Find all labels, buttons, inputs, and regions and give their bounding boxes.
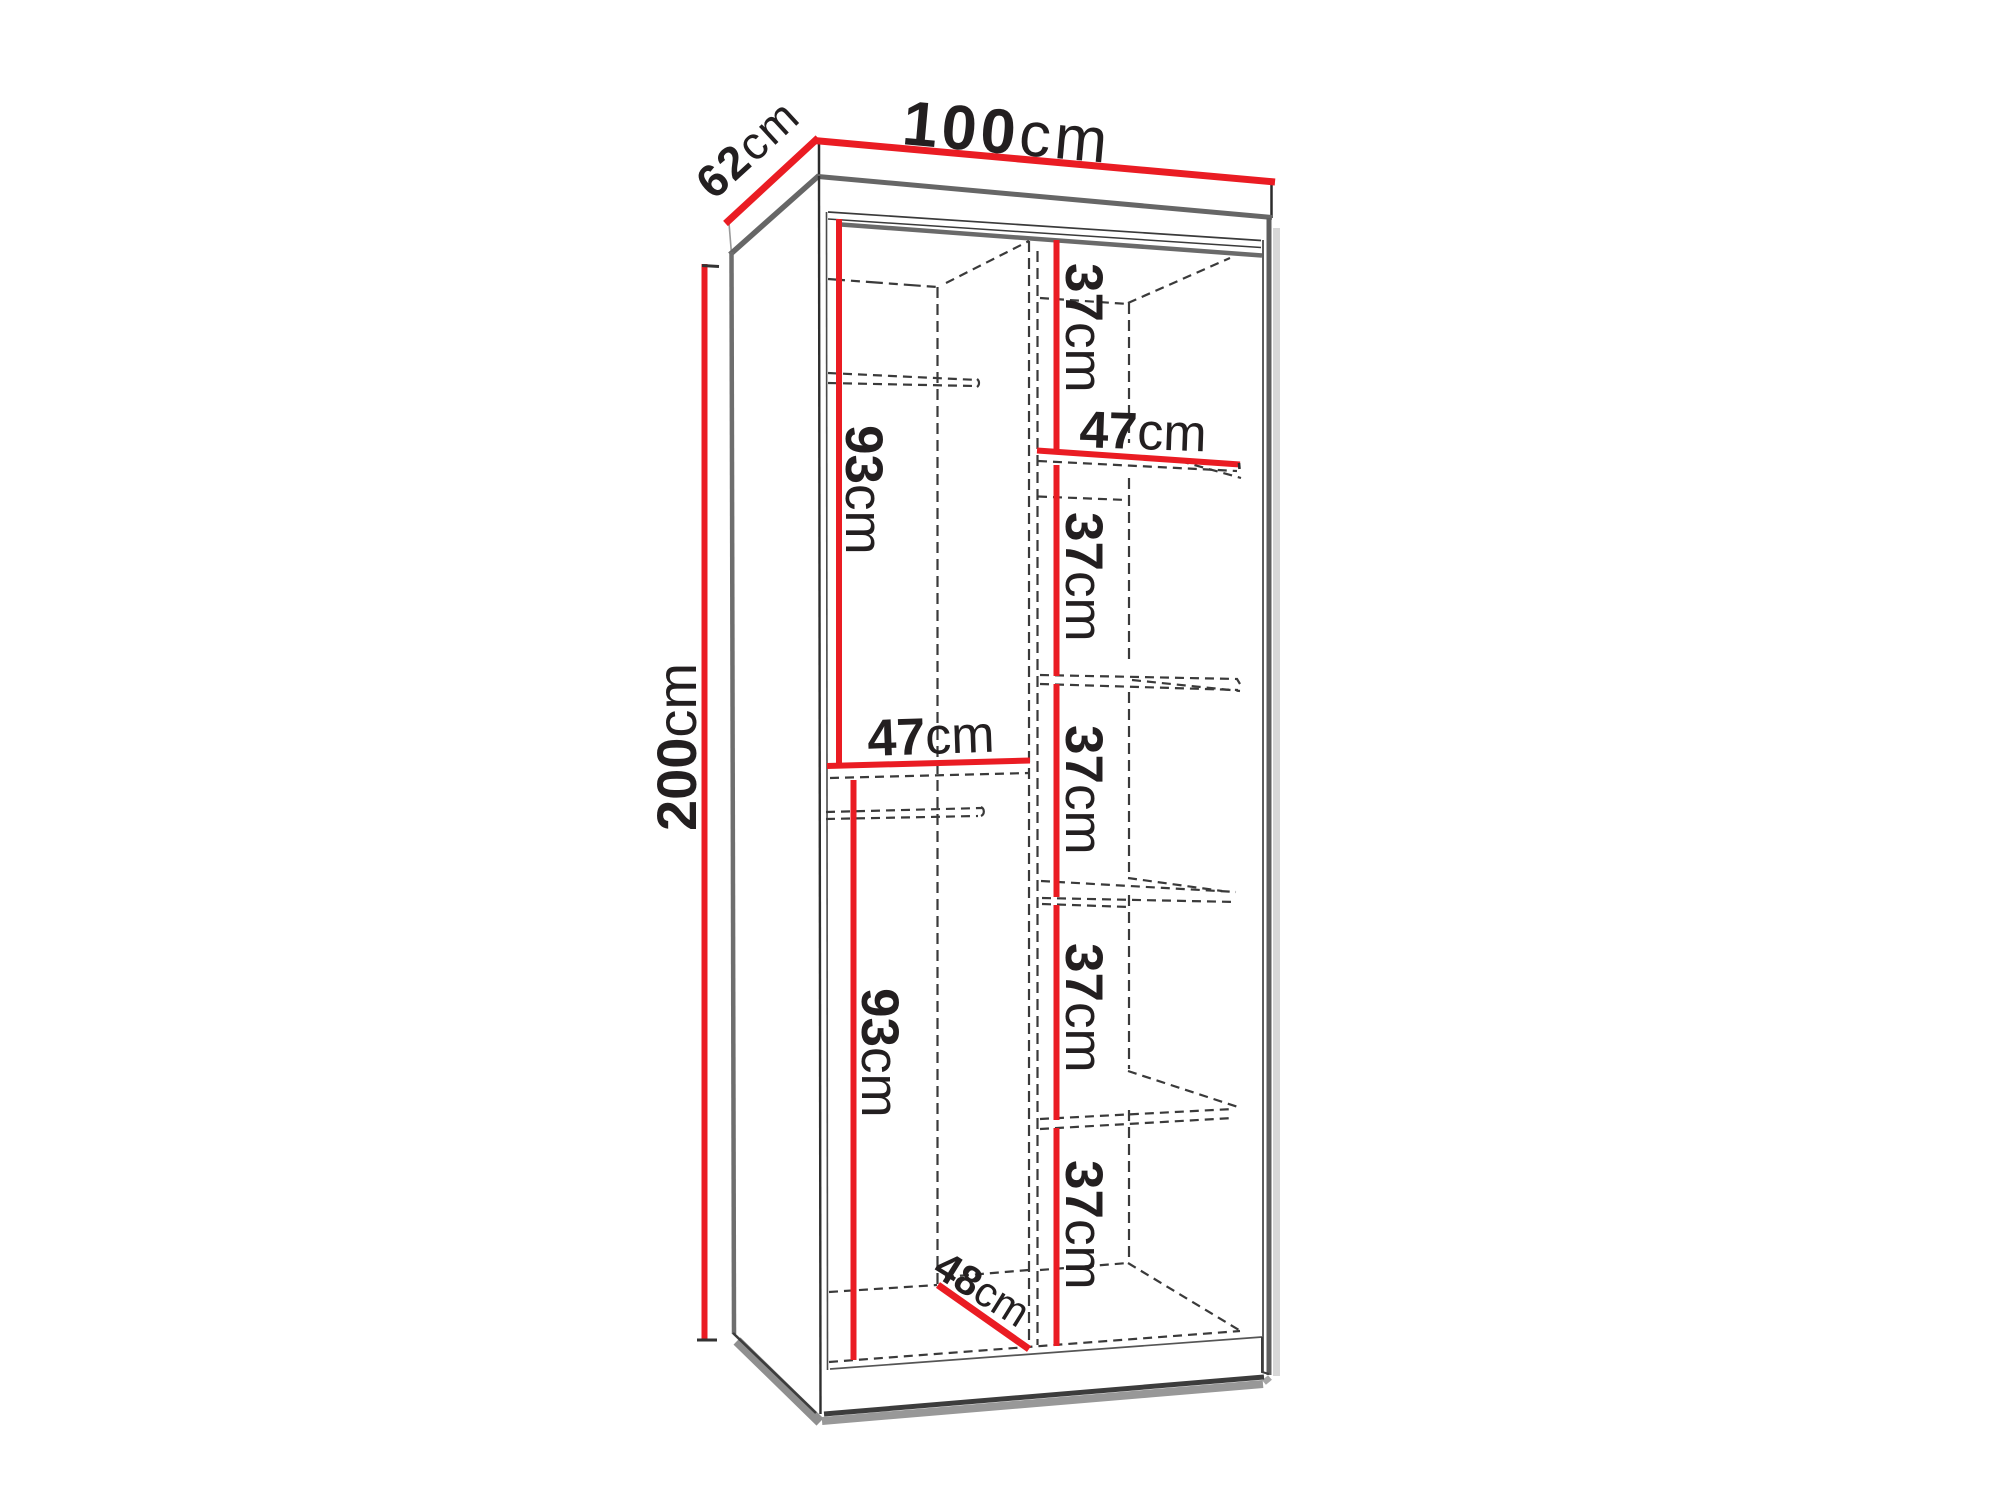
- svg-text:37cm: 37cm: [1054, 512, 1113, 642]
- svg-text:47cm: 47cm: [1079, 401, 1208, 463]
- svg-text:37cm: 37cm: [1054, 263, 1113, 393]
- svg-text:37cm: 37cm: [1054, 725, 1113, 855]
- svg-text:93cm: 93cm: [834, 425, 893, 555]
- svg-text:37cm: 37cm: [1054, 943, 1113, 1073]
- svg-text:37cm: 37cm: [1054, 1160, 1113, 1290]
- svg-text:93cm: 93cm: [850, 988, 909, 1118]
- svg-text:47cm: 47cm: [866, 706, 995, 768]
- svg-text:200cm: 200cm: [645, 663, 708, 831]
